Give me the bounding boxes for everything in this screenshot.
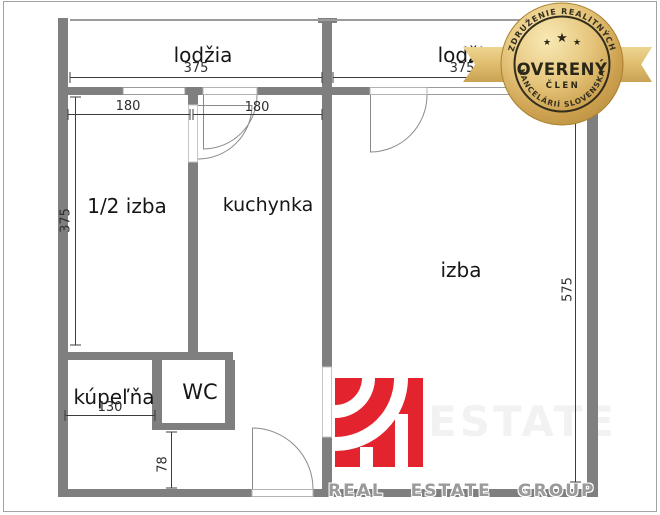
dimension-label-kupelna-width: 130: [84, 400, 136, 415]
star-icon: ★: [556, 31, 568, 46]
door-opening-izba: [323, 367, 332, 437]
verified-badge: ZDRUŽENIE REALITNÝCH KANCELÁRIÍ SLOVENSK…: [500, 2, 624, 126]
floor-plan-canvas: ESTATE: [0, 0, 660, 515]
dimension-label-kuchynka-width: 180: [231, 100, 283, 115]
room-label-polizba: 1/2 izba: [57, 194, 197, 218]
room-label-izba: izba: [401, 258, 521, 282]
logo-slot: [395, 414, 408, 467]
window-symbol: [123, 88, 185, 95]
star-icon: ★: [573, 38, 581, 48]
badge-main-text: OVERENÝ: [517, 60, 608, 79]
agency-logo: [335, 378, 423, 467]
star-icon: ★: [543, 38, 551, 48]
door-opening-kuchynka-balcony: [203, 88, 257, 95]
room-label-kuchynka: kuchynka: [198, 194, 338, 216]
dimension-label-polizba-width: 180: [102, 99, 154, 114]
door-opening-entrance: [252, 490, 313, 497]
door-opening-izba-balcony: [370, 88, 427, 95]
logo-slot: [360, 447, 373, 467]
dimension-label-hall-height: 78: [156, 439, 171, 491]
room-label-wc: WC: [160, 380, 240, 404]
dimension-label-polizba-height: 375: [59, 195, 74, 247]
door-arc-entrance: [252, 428, 313, 489]
watermark-text: REAL ESTATE GROUP: [328, 481, 594, 501]
badge-sub-text: ČLEN: [546, 79, 581, 91]
dimension-label-loggia-left: 375: [170, 61, 222, 76]
dimension-label-izba-height: 575: [561, 264, 576, 316]
door-arc-izba-balcony: [370, 95, 427, 152]
